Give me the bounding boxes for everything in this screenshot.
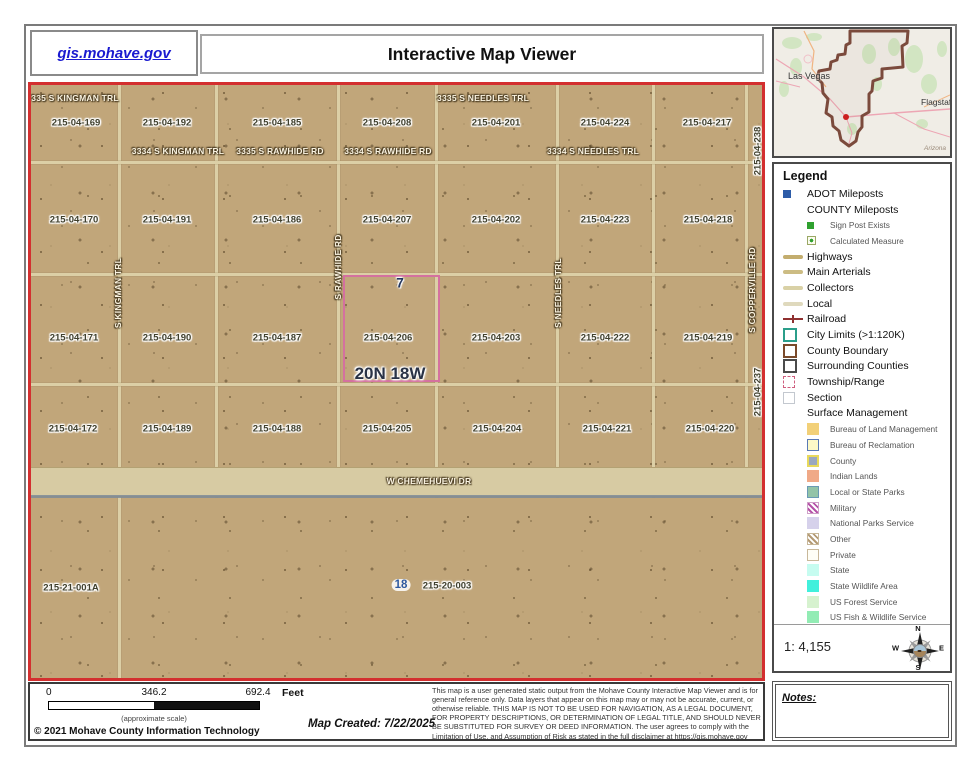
county-boundary-swatch <box>783 344 797 358</box>
parcel-label: 215-04-188 <box>253 424 302 435</box>
legend-item: COUNTY Mileposts <box>774 202 950 218</box>
parcel-label: 215-04-191 <box>143 215 192 226</box>
legend-item: US Forest Service <box>774 594 950 610</box>
legend-label: US Fish & Wildlife Service <box>830 612 926 622</box>
legend-item: Other <box>774 531 950 547</box>
parcel-label: 215-04-203 <box>472 333 521 344</box>
us-fish-wildlife-swatch <box>807 611 819 623</box>
legend-item: National Parks Service <box>774 515 950 531</box>
highways-swatch <box>783 255 803 259</box>
legend-label: County <box>830 456 856 466</box>
parcel-label: 215-04-187 <box>253 333 302 344</box>
page-title: Interactive Map Viewer <box>388 44 576 65</box>
parcel-label: 215-04-189 <box>143 424 192 435</box>
road-line <box>652 85 655 497</box>
legend-item: Bureau of Reclamation <box>774 437 950 453</box>
notes-label: Notes: <box>782 692 816 704</box>
scale-tick-0: 0 <box>46 687 52 698</box>
street-label-vertical: S RAWHIDE RD <box>333 234 343 299</box>
legend-label: Surrounding Counties <box>807 360 909 372</box>
parcel-label: 215-04-217 <box>683 118 732 129</box>
private-swatch <box>807 549 819 561</box>
military-swatch <box>807 502 819 514</box>
parcel-label: 215-04-172 <box>49 424 98 435</box>
street-label: 3334 S KINGMAN TRL <box>132 146 224 156</box>
street-label: 3334 S NEEDLES TRL <box>547 146 639 156</box>
legend-label: Other <box>830 534 851 544</box>
legend-label: Surface Management <box>807 407 907 419</box>
approximate-scale-label: (approximate scale) <box>121 714 187 723</box>
notes-panel: Notes: <box>772 681 952 741</box>
legend-item: Township/Range <box>774 374 950 390</box>
location-marker <box>843 114 849 120</box>
legend-item: Military <box>774 500 950 516</box>
parcel-label-vertical: 215-04-237 <box>753 368 764 417</box>
parcel-label-vertical: 215-04-238 <box>753 127 764 176</box>
street-label: 3334 S RAWHIDE RD <box>344 146 431 156</box>
legend-label: City Limits (>1:120K) <box>807 329 905 341</box>
legend-label: Military <box>830 503 856 513</box>
legend-item: US Fish & Wildlife Service <box>774 610 950 626</box>
legend-item: State <box>774 563 950 579</box>
scale-bar <box>48 701 260 710</box>
legend-label: COUNTY Mileposts <box>807 204 898 216</box>
legend-label: Local <box>807 298 832 310</box>
disclaimer-text: This map is a user generated static outp… <box>432 686 763 741</box>
sign-post-swatch <box>807 222 814 229</box>
township-range-label: 20N 18W <box>355 364 426 384</box>
legend-item: Calculated Measure <box>774 233 950 249</box>
legend-label: Collectors <box>807 282 854 294</box>
state-parks-swatch <box>807 486 819 498</box>
footer: 0 346.2 692.4 Feet (approximate scale) ©… <box>28 682 765 741</box>
county-swatch <box>807 455 819 467</box>
city-limits-swatch <box>783 328 797 342</box>
parcel-line <box>31 161 762 164</box>
legend-item: Section <box>774 390 950 406</box>
state-wildlife-swatch <box>807 580 819 592</box>
street-label: 3335 S NEEDLES TRL <box>437 93 529 103</box>
parcel-label: 215-04-201 <box>472 118 521 129</box>
legend-label: National Parks Service <box>830 518 914 528</box>
overview-map: Las Vegas Flagstaff Arizona <box>772 27 952 158</box>
parcel-label: 215-04-221 <box>583 424 632 435</box>
legend-label: Highways <box>807 251 853 263</box>
legend-item: County <box>774 453 950 469</box>
calculated-measure-swatch <box>807 236 816 245</box>
scale-row: 1: 4,155 N E S W <box>774 624 950 671</box>
overview-state-label: Arizona <box>924 145 946 152</box>
section-number-label: 18 <box>392 579 411 591</box>
legend-item: Main Arterials <box>774 264 950 280</box>
legend-item: Collectors <box>774 280 950 296</box>
street-label-vertical: S COPPERVILLE RD <box>747 247 757 333</box>
compass-n-label: N <box>915 624 920 633</box>
copyright-text: © 2021 Mohave County Information Technol… <box>34 726 260 737</box>
parcel-label: 215-04-224 <box>581 118 630 129</box>
legend-item: Surrounding Counties <box>774 359 950 375</box>
notes-inner: Notes: <box>775 684 949 738</box>
title-bar: Interactive Map Viewer <box>200 34 764 74</box>
scale-bar-black-segment <box>154 702 259 709</box>
road-line <box>118 497 121 678</box>
parcel-label: 215-04-223 <box>581 215 630 226</box>
parcel-label: 215-04-205 <box>363 424 412 435</box>
legend-label: Bureau of Reclamation <box>830 440 914 450</box>
street-label-vertical: S KINGMAN TRL <box>113 258 123 328</box>
legend-item: Sign Post Exists <box>774 217 950 233</box>
county-boundary-outline <box>817 31 908 146</box>
legend-items: ADOT MilepostsCOUNTY MilepostsSign Post … <box>774 186 950 625</box>
legend-label: Bureau of Land Management <box>830 424 937 434</box>
overview-city-label: Las Vegas <box>788 71 830 81</box>
site-link[interactable]: gis.mohave.gov <box>30 30 198 76</box>
scale-tick-end: 692.4 <box>245 687 270 698</box>
legend-label: Railroad <box>807 313 846 325</box>
section-label: 7 <box>396 276 404 291</box>
collectors-swatch <box>783 286 803 290</box>
compass-e-label: E <box>939 644 944 653</box>
local-swatch <box>783 302 803 306</box>
parcel-label: 215-04-219 <box>684 333 733 344</box>
legend: Legend ADOT MilepostsCOUNTY MilepostsSig… <box>772 162 952 673</box>
parcel-label: 215-04-218 <box>684 215 733 226</box>
parcel-label: 215-04-202 <box>472 215 521 226</box>
scale-tick-mid: 346.2 <box>141 687 166 698</box>
main-arterials-swatch <box>783 270 803 274</box>
compass-s-label: S <box>915 663 920 672</box>
us-forest-swatch <box>807 596 819 608</box>
parcel-label: 215-04-206 <box>364 333 413 344</box>
legend-title: Legend <box>774 164 950 186</box>
parcel-label: 215-04-208 <box>363 118 412 129</box>
legend-label: State <box>830 565 849 575</box>
parcel-label: 215-04-169 <box>52 118 101 129</box>
legend-item: County Boundary <box>774 343 950 359</box>
legend-label: Sign Post Exists <box>830 220 890 230</box>
page: gis.mohave.gov Interactive Map Viewer 33… <box>0 0 979 768</box>
legend-label: Private <box>830 550 856 560</box>
legend-item: Local <box>774 296 950 312</box>
map-scale-ratio: 1: 4,155 <box>784 639 831 654</box>
legend-item: Local or State Parks <box>774 484 950 500</box>
parcel-label: 215-04-204 <box>473 424 522 435</box>
legend-item: Private <box>774 547 950 563</box>
legend-item: ADOT Mileposts <box>774 186 950 202</box>
parcel-label: 215-04-170 <box>50 215 99 226</box>
parcel-label: 215-04-207 <box>363 215 412 226</box>
adot-milepost-swatch <box>783 190 791 198</box>
parcel-label: 215-20-003 <box>423 581 472 592</box>
parcel-label: 215-04-220 <box>686 424 735 435</box>
other-swatch <box>807 533 819 545</box>
legend-label: Calculated Measure <box>830 236 904 246</box>
bureau-reclamation-swatch <box>807 439 819 451</box>
legend-label: State Wildlife Area <box>830 581 898 591</box>
legend-item: Surface Management <box>774 406 950 422</box>
parcel-label: 215-21-001A <box>43 583 98 594</box>
street-label: W CHEMEHUEVI DR <box>387 476 472 486</box>
surrounding-counties-swatch <box>783 359 797 373</box>
township-range-swatch <box>783 376 795 388</box>
scale-unit-label: Feet <box>282 687 304 699</box>
blm-swatch <box>807 423 819 435</box>
legend-item: City Limits (>1:120K) <box>774 327 950 343</box>
map-canvas: 335 S KINGMAN TRL3335 S NEEDLES TRL3334 … <box>28 82 765 681</box>
state-swatch <box>807 564 819 576</box>
overview-map-graphic <box>774 29 950 156</box>
section-swatch <box>783 392 795 404</box>
street-label: 3335 S RAWHIDE RD <box>236 146 323 156</box>
legend-label: Local or State Parks <box>830 487 905 497</box>
legend-label: Township/Range <box>807 376 885 388</box>
legend-label: Section <box>807 392 842 404</box>
legend-item: Indian Lands <box>774 468 950 484</box>
legend-label: Main Arterials <box>807 266 871 278</box>
legend-item: Bureau of Land Management <box>774 421 950 437</box>
legend-item: Highways <box>774 249 950 265</box>
parcel-label: 215-04-185 <box>253 118 302 129</box>
railroad-swatch <box>783 318 803 320</box>
site-link-label: gis.mohave.gov <box>57 45 170 62</box>
street-label-vertical: S NEEDLES TRL <box>553 258 563 328</box>
nps-swatch <box>807 517 819 529</box>
indian-lands-swatch <box>807 470 819 482</box>
parcel-label: 215-04-190 <box>143 333 192 344</box>
compass-rose: N E S W <box>892 626 944 670</box>
street-label: 335 S KINGMAN TRL <box>31 93 118 103</box>
parcel-label: 215-04-171 <box>50 333 99 344</box>
legend-label: Indian Lands <box>830 471 878 481</box>
paved-road-line <box>31 495 762 498</box>
legend-label: County Boundary <box>807 345 888 357</box>
legend-label: US Forest Service <box>830 597 897 607</box>
legend-item: Railroad <box>774 312 950 328</box>
map-created-date: Map Created: 7/22/2025 <box>308 718 435 730</box>
legend-label: ADOT Mileposts <box>807 188 883 200</box>
parcel-label: 215-04-186 <box>253 215 302 226</box>
parcel-label: 215-04-192 <box>143 118 192 129</box>
overview-city-right-label: Flagstaff <box>921 97 952 107</box>
legend-item: State Wildlife Area <box>774 578 950 594</box>
parcel-label: 215-04-222 <box>581 333 630 344</box>
compass-w-label: W <box>892 644 899 653</box>
